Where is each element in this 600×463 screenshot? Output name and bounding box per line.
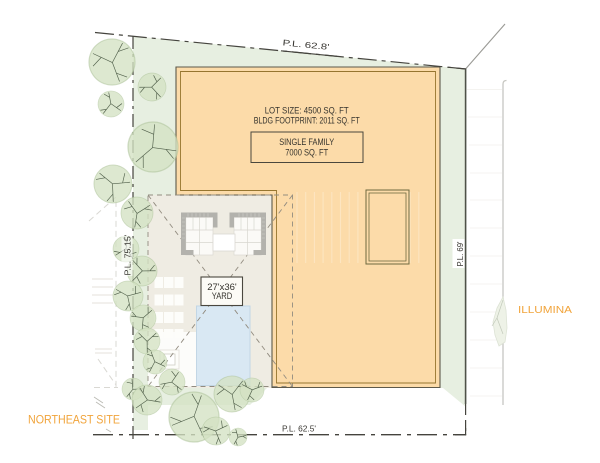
svg-text:P.L. 75.15': P.L. 75.15' <box>123 234 133 275</box>
svg-text:SINGLE FAMILY: SINGLE FAMILY <box>279 137 334 147</box>
svg-text:ILLUMINA: ILLUMINA <box>518 305 572 316</box>
svg-text:NORTHEAST SITE: NORTHEAST SITE <box>28 414 120 427</box>
svg-text:P.L. 69': P.L. 69' <box>456 241 465 266</box>
svg-text:LOT SIZE: 4500 SQ. FT: LOT SIZE: 4500 SQ. FT <box>265 106 349 116</box>
svg-text:BLDG FOOTPRINT: 2011 SQ. FT: BLDG FOOTPRINT: 2011 SQ. FT <box>254 116 360 126</box>
svg-text:7000 SQ. FT: 7000 SQ. FT <box>285 147 328 157</box>
svg-text:YARD: YARD <box>212 290 233 301</box>
svg-text:P.L. 62.5': P.L. 62.5' <box>282 424 316 434</box>
